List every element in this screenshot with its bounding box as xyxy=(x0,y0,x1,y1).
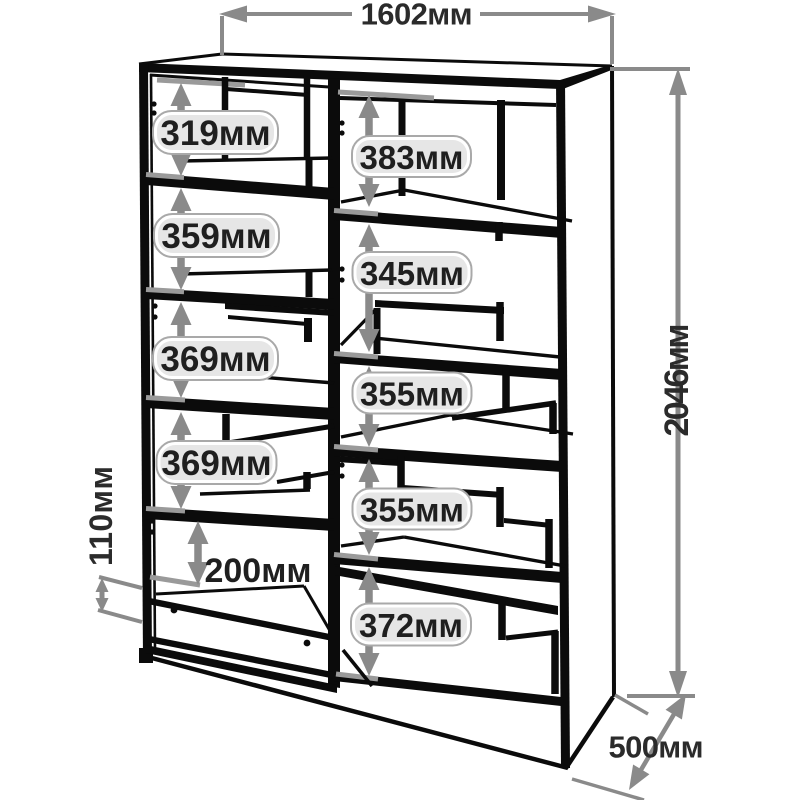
svg-text:200мм: 200мм xyxy=(204,552,311,590)
svg-text:1602мм: 1602мм xyxy=(361,0,473,32)
svg-text:369мм: 369мм xyxy=(161,444,271,483)
svg-text:369мм: 369мм xyxy=(160,340,270,379)
svg-text:110мм: 110мм xyxy=(83,466,119,566)
svg-text:500мм: 500мм xyxy=(609,730,704,765)
svg-text:2046мм: 2046мм xyxy=(658,324,696,437)
svg-text:383мм: 383мм xyxy=(360,139,464,176)
svg-text:319мм: 319мм xyxy=(160,114,270,153)
svg-text:372мм: 372мм xyxy=(359,607,463,644)
svg-text:355мм: 355мм xyxy=(360,376,464,413)
svg-text:359мм: 359мм xyxy=(161,217,271,256)
svg-text:355мм: 355мм xyxy=(360,492,464,529)
svg-text:345мм: 345мм xyxy=(360,255,464,292)
